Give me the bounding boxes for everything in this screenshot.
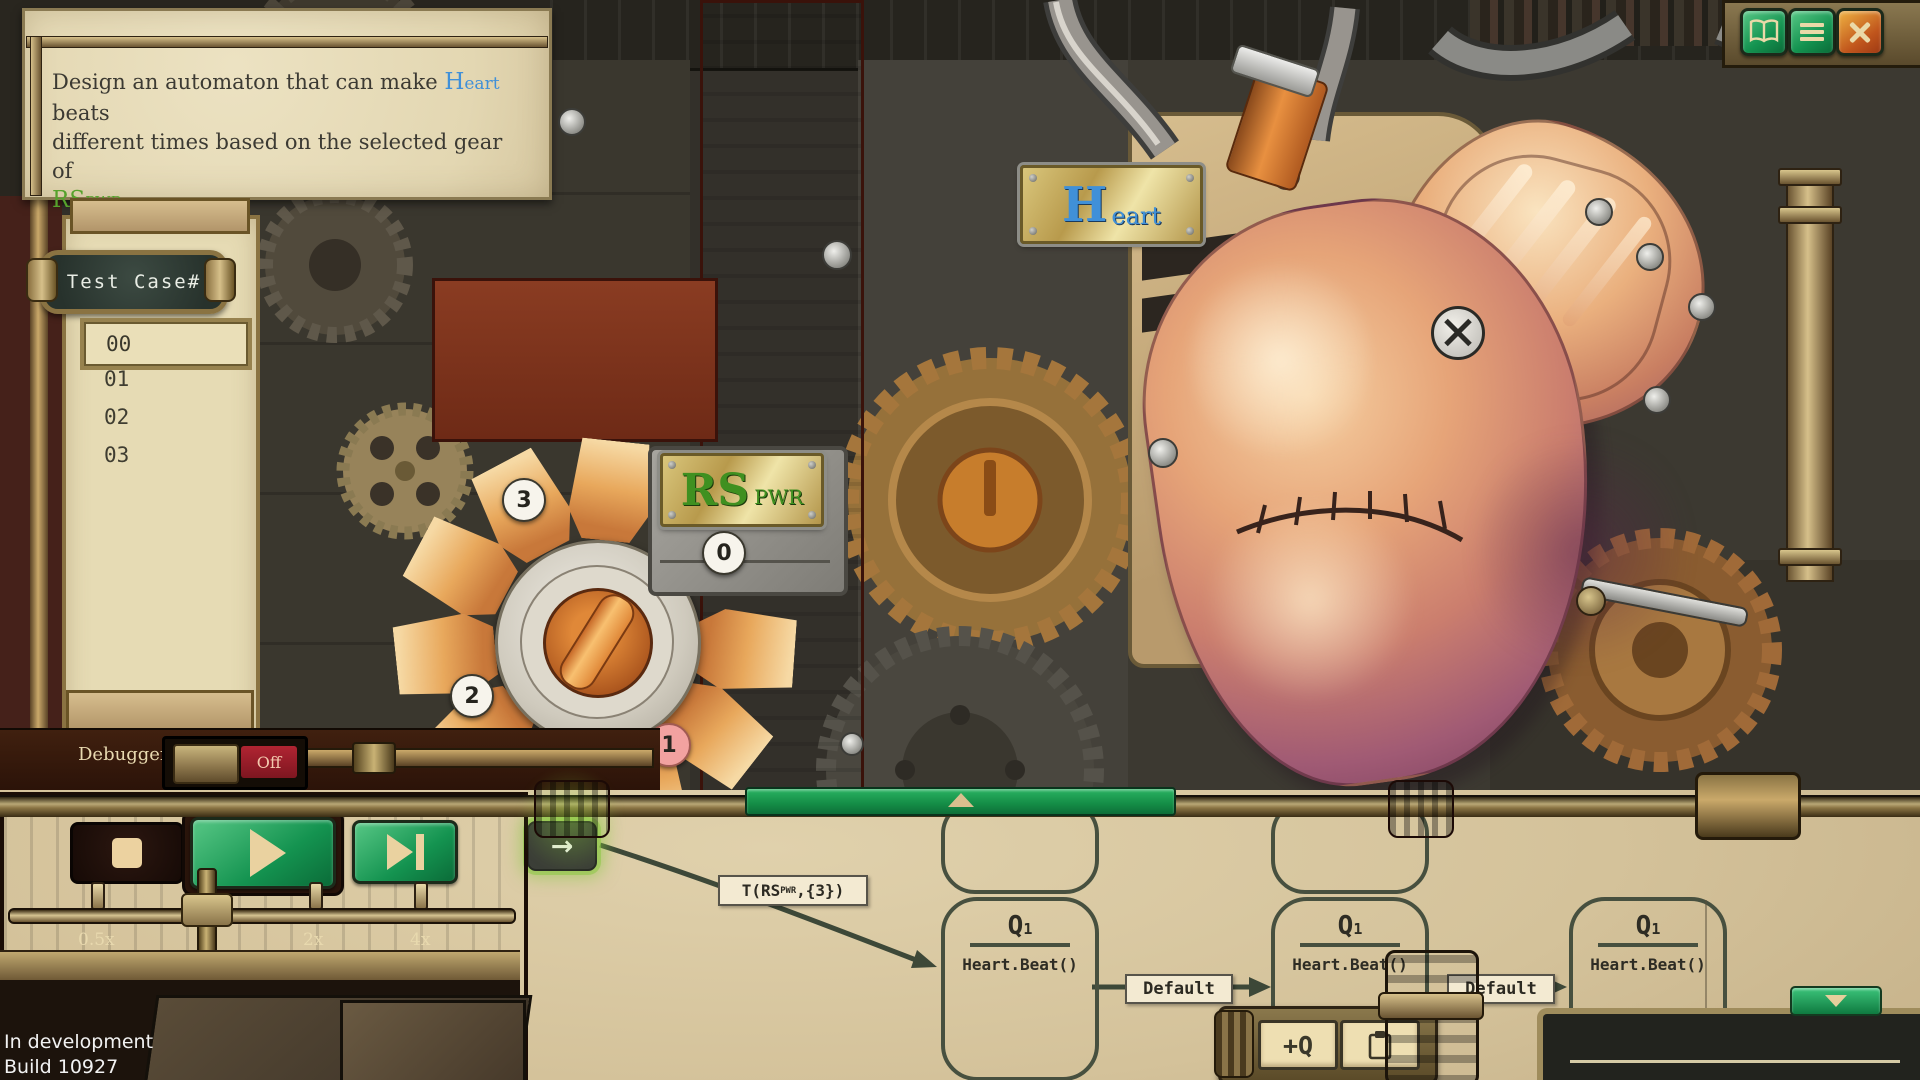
- help-button[interactable]: [1740, 8, 1788, 56]
- pipe-fitting-right: [1695, 772, 1801, 840]
- step-icon: [387, 834, 424, 870]
- close-button[interactable]: [1836, 8, 1884, 56]
- speed-slider-handle[interactable]: [181, 893, 233, 927]
- state-divider: [1300, 943, 1400, 947]
- transition-label[interactable]: T(RSPWR,{3}): [718, 875, 868, 906]
- console-line: [1570, 1060, 1900, 1063]
- expand-triangle-icon: [948, 793, 974, 807]
- collapse-triangle-icon: [1825, 995, 1847, 1007]
- stop-icon: [112, 838, 142, 868]
- pipe-coupling: [1388, 780, 1454, 838]
- paper-seam: [1705, 900, 1707, 1010]
- add-state-button[interactable]: +Q: [1258, 1020, 1338, 1070]
- state-name: Q1: [945, 911, 1095, 941]
- state-node[interactable]: Q1 Heart.Beat(): [941, 897, 1099, 1080]
- play-icon: [250, 829, 286, 877]
- state-divider: [1598, 943, 1698, 947]
- state-name: Q1: [1275, 911, 1425, 941]
- base-plate: [340, 1000, 526, 1080]
- pipe-elbow-ring: [1378, 992, 1484, 1020]
- state-action: Heart.Beat(): [1573, 955, 1723, 974]
- build-info-line1: In development: [4, 1030, 153, 1055]
- speed-label[interactable]: 2x: [303, 930, 323, 950]
- menu-icon: [1800, 20, 1824, 44]
- state-name: Q1: [1573, 911, 1723, 941]
- speed-label[interactable]: 0.5x: [78, 930, 115, 950]
- timeline-expand-bar[interactable]: [745, 787, 1176, 816]
- build-info-line2: Build 10927: [4, 1055, 153, 1080]
- speed-slider-rail[interactable]: [8, 908, 516, 924]
- step-button[interactable]: [352, 820, 458, 884]
- open-book-icon: [1749, 19, 1779, 45]
- state-action: Heart.Beat(): [945, 955, 1095, 974]
- speed-tick: [91, 882, 105, 910]
- toolbar-endcap: [1214, 1010, 1254, 1078]
- pipe-valve[interactable]: [534, 780, 610, 838]
- stop-button[interactable]: [70, 822, 184, 884]
- speed-tick: [414, 882, 428, 910]
- game-screen: RS PWR 3 0 2 1: [0, 0, 1920, 1080]
- close-icon: [1847, 19, 1873, 45]
- speed-tick: [309, 882, 323, 910]
- speed-label[interactable]: 4x: [410, 930, 430, 950]
- console-panel: [1537, 1008, 1920, 1080]
- default-transition-label[interactable]: Default: [1125, 974, 1233, 1004]
- console-collapse-button[interactable]: [1790, 986, 1882, 1016]
- build-info: In development Build 10927: [4, 1030, 153, 1080]
- menu-button[interactable]: [1788, 8, 1836, 56]
- state-divider: [970, 943, 1070, 947]
